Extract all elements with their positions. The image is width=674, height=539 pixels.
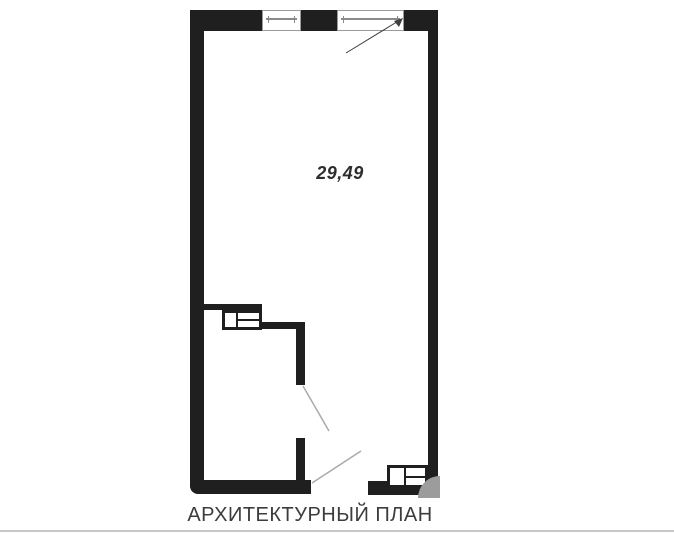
wall-top-pier [300,10,338,31]
door-swing-line-bottom [312,451,361,483]
plan-caption: АРХИТЕКТУРНЫЙ ПЛАН [120,504,500,527]
window-2-pane-line [341,18,400,20]
footer-divider [0,530,674,532]
plan-line-graphics [0,0,674,539]
duct-block-upper [222,310,262,330]
window-1 [262,10,301,31]
wall-bottom-left-segment [190,480,311,494]
window-2-right-tick [397,16,398,23]
duct-cell-icon [237,312,260,320]
partition-wall-vertical-upper [296,329,305,385]
window-1-left-tick [268,16,269,23]
door-swing-line-interior [303,386,329,431]
partition-wall-mid [262,322,305,329]
duct-cell-icon [389,467,405,486]
window-2 [337,10,404,31]
wall-right [428,10,438,496]
room-area-label: 29,49 [298,163,382,184]
partition-wall-vertical-lower [296,438,305,481]
duct-cell-icon [237,320,260,328]
duct-cell-icon [405,467,426,477]
window-1-pane-line [266,18,297,20]
floor-plan-page: 29,49 АРХИТЕКТУРНЫЙ ПЛАН [0,0,674,539]
wall-left [190,10,204,494]
duct-cell-icon [224,312,237,328]
window-2-left-tick [343,16,344,23]
window-1-right-tick [294,16,295,23]
